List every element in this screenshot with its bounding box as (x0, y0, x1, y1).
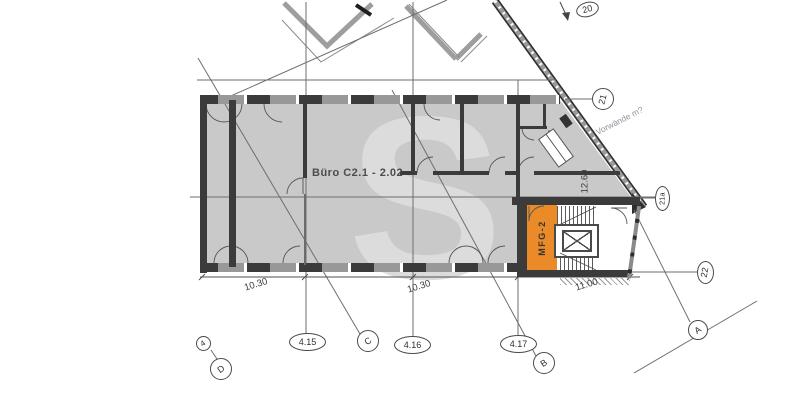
wall-partition-4 (516, 104, 520, 200)
floor-plan-canvas: S MFG-2 (0, 0, 800, 400)
wall-corridor-d (534, 171, 620, 175)
axis-bubble-C: C (357, 330, 379, 352)
wall-corridor-c (505, 171, 518, 175)
furniture-tilted (539, 129, 574, 167)
wall-left (200, 97, 207, 273)
wall-bottom-windows (200, 263, 519, 272)
wall-top-windows (200, 95, 560, 104)
neighbor-building-walls (284, 3, 481, 59)
wall-stairwell-left (517, 205, 527, 272)
stair-run-lines (557, 207, 596, 270)
axis-bubble-A: A (688, 320, 708, 340)
axis-bubble-21a: 21a (655, 186, 670, 211)
wall-partition-3 (460, 104, 464, 173)
axis-bubble-4-15: 4.15 (289, 333, 326, 351)
axis-bubble-4: 4 (196, 336, 211, 351)
axis-lines (190, 0, 757, 373)
axis-bubble-4-16: 4.16 (394, 336, 431, 354)
wall-stairwell-top (512, 197, 640, 205)
office-room-label: Büro C2.1 - 2.02 (312, 167, 403, 179)
wall-partition-2 (411, 104, 415, 173)
axis-bubble-21: 21 (592, 88, 614, 110)
axis-bubble-D: D (210, 358, 232, 380)
axis-bubble-22: 22 (697, 261, 714, 284)
wall-partition-1-upper (303, 100, 307, 178)
direction-arrow (560, 2, 570, 21)
fixture-dark (559, 114, 573, 128)
door-arcs (206, 104, 627, 263)
wall-corridor-b (433, 171, 489, 175)
dim-label-diagonal: 12.60 (580, 162, 591, 202)
wall-stairwell-bottom (517, 270, 630, 277)
wall-wc-v (543, 104, 546, 129)
wall-interior-thick (229, 100, 236, 267)
axis-bubble-4-17: 4.17 (500, 335, 537, 353)
axis-bubble-B: B (533, 352, 555, 374)
wall-partition-1-lower (304, 194, 306, 265)
